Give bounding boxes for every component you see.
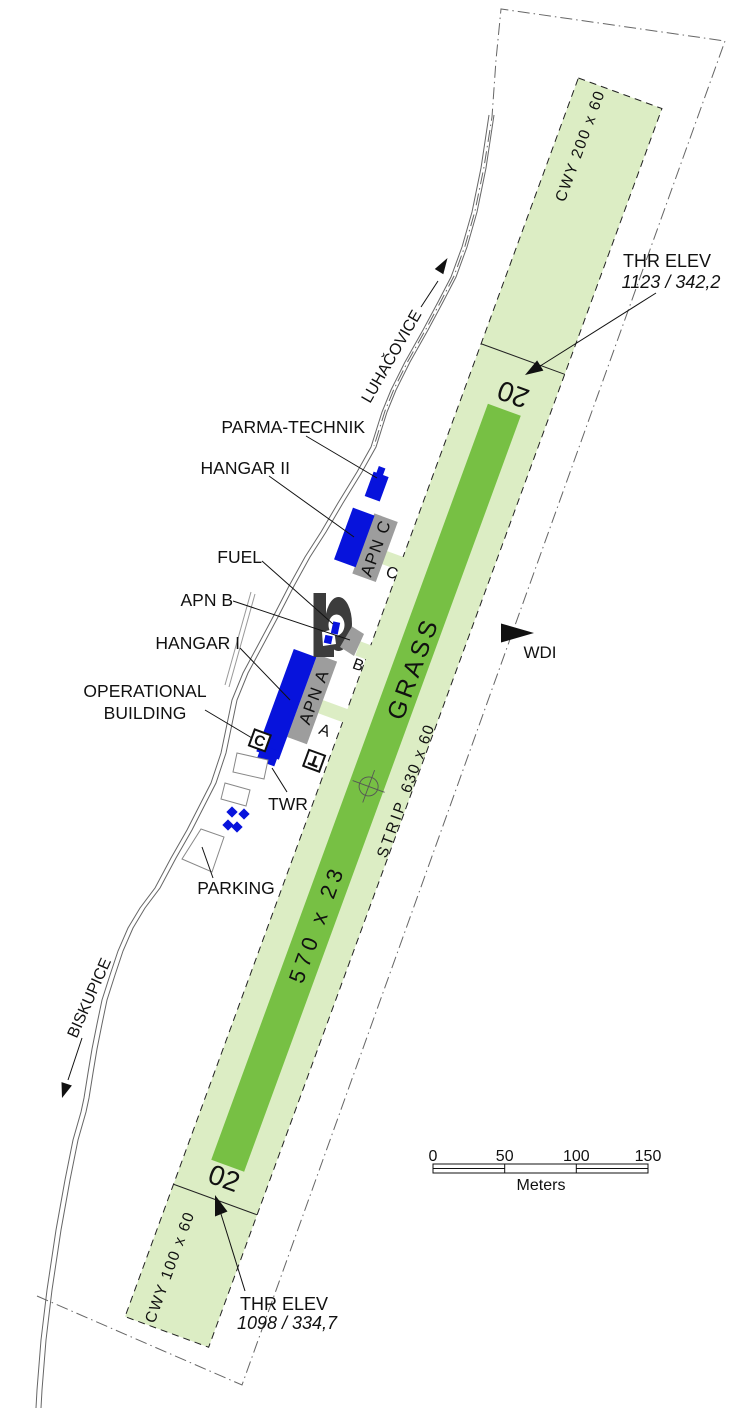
svg-text:150: 150 xyxy=(635,1148,662,1165)
svg-text:0: 0 xyxy=(429,1148,438,1165)
svg-text:Meters: Meters xyxy=(517,1177,566,1194)
svg-text:FUEL: FUEL xyxy=(217,547,262,567)
svg-text:THR ELEV: THR ELEV xyxy=(623,251,711,271)
svg-text:50: 50 xyxy=(496,1148,514,1165)
svg-text:HANGAR II: HANGAR II xyxy=(201,458,290,478)
svg-text:1098 / 334,7: 1098 / 334,7 xyxy=(237,1313,338,1333)
svg-text:WDI: WDI xyxy=(523,643,556,662)
svg-text:APN B: APN B xyxy=(180,590,233,610)
svg-text:BUILDING: BUILDING xyxy=(104,703,187,723)
svg-text:PARMA-TECHNIK: PARMA-TECHNIK xyxy=(221,417,365,437)
svg-text:OPERATIONAL: OPERATIONAL xyxy=(83,681,206,701)
svg-text:TWR: TWR xyxy=(268,794,308,814)
svg-text:HANGAR I: HANGAR I xyxy=(155,633,240,653)
svg-text:100: 100 xyxy=(563,1148,590,1165)
svg-text:PARKING: PARKING xyxy=(197,878,274,898)
svg-text:1123 / 342,2: 1123 / 342,2 xyxy=(622,272,721,292)
svg-text:THR ELEV: THR ELEV xyxy=(240,1294,328,1314)
